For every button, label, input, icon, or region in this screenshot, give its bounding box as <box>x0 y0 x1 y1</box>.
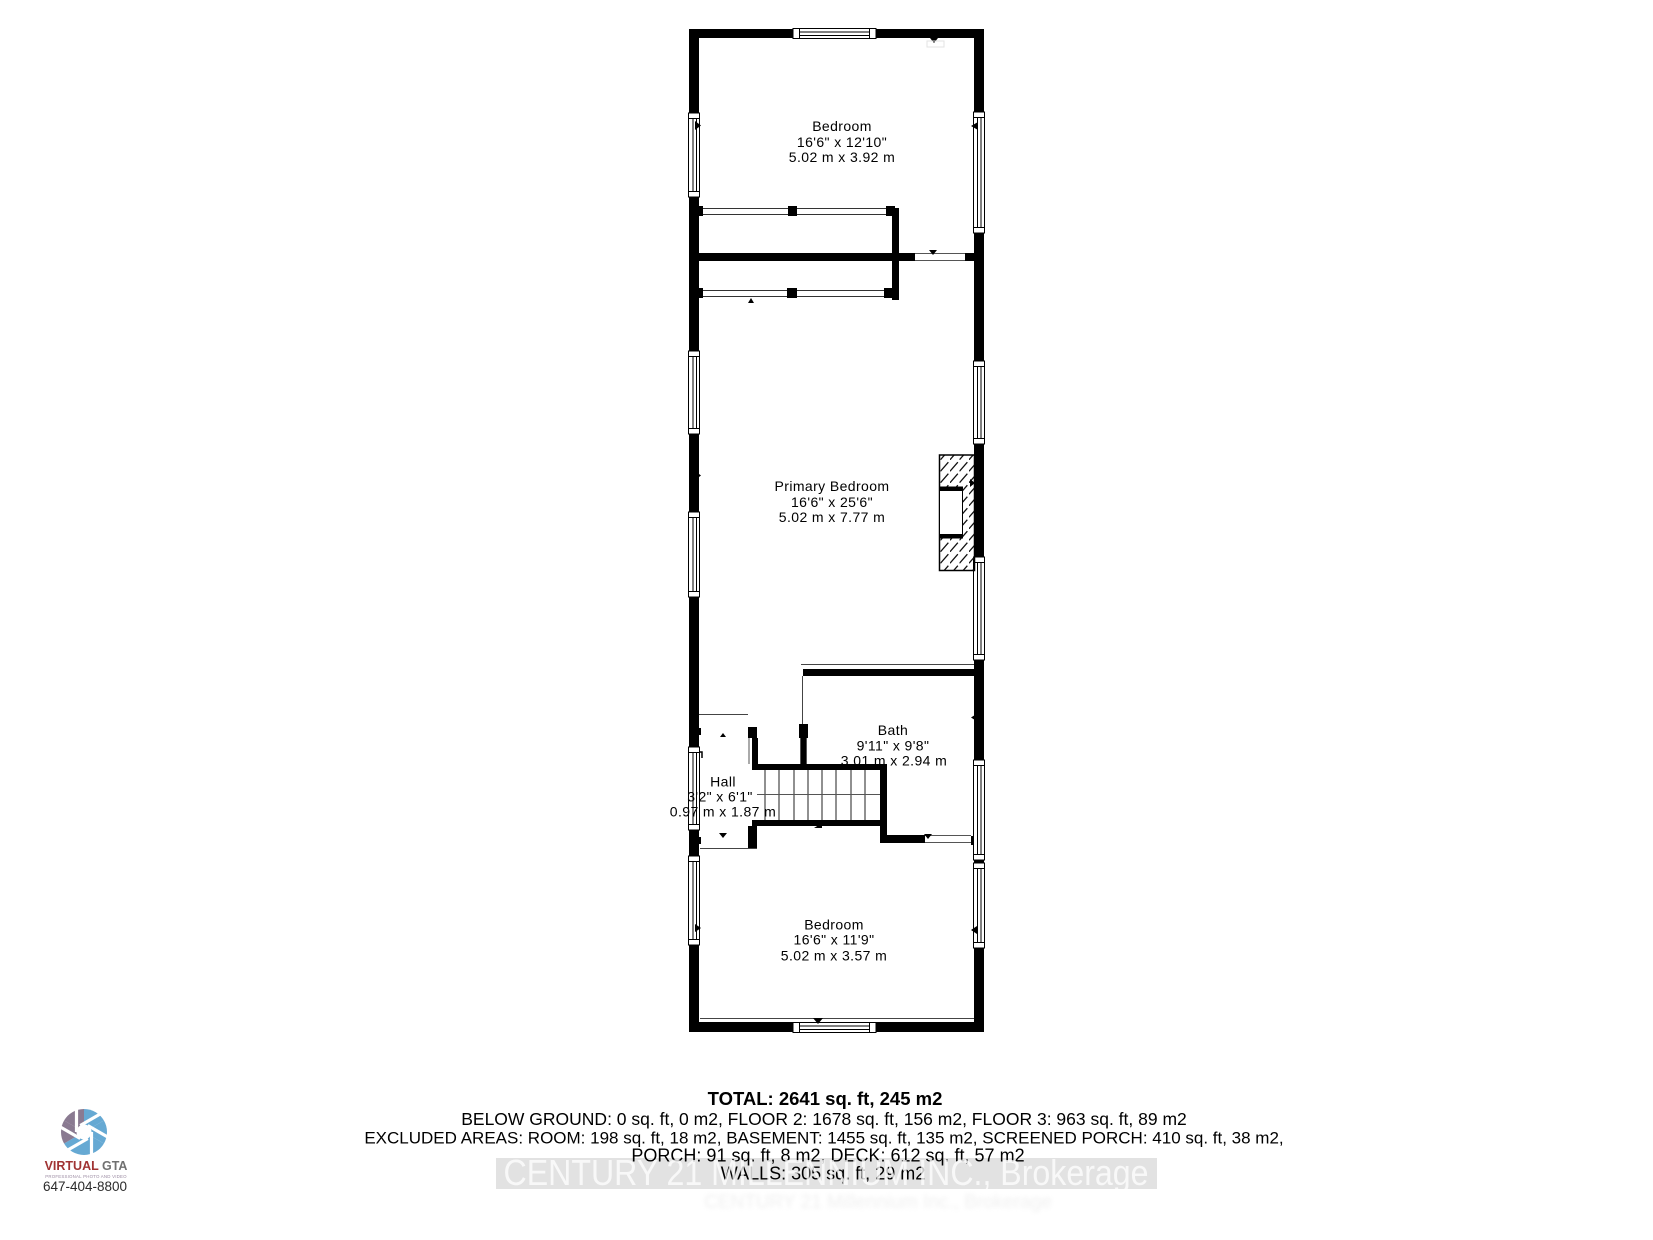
svg-text:9'11" x 9'8": 9'11" x 9'8" <box>857 738 930 754</box>
svg-text:TOTAL: 2641 sq. ft, 245 m2: TOTAL: 2641 sq. ft, 245 m2 <box>708 1088 943 1109</box>
svg-text:5.02 m x 7.77 m: 5.02 m x 7.77 m <box>779 509 885 525</box>
svg-text:Hall: Hall <box>710 774 736 790</box>
svg-text:BELOW GROUND: 0 sq. ft, 0 m2,: BELOW GROUND: 0 sq. ft, 0 m2, FLOOR 2: 1… <box>461 1109 1187 1129</box>
svg-text:0.97 m x 1.87 m: 0.97 m x 1.87 m <box>670 804 776 820</box>
svg-text:CENTURY 21 MILLENNIUM INC., Br: CENTURY 21 MILLENNIUM INC., Brokerage <box>504 1152 1149 1193</box>
svg-text:VIRTUAL GTA: VIRTUAL GTA <box>45 1159 128 1173</box>
svg-text:16'6" x 12'10": 16'6" x 12'10" <box>797 134 887 150</box>
svg-text:16'6" x 25'6": 16'6" x 25'6" <box>791 494 873 510</box>
svg-text:Primary Bedroom: Primary Bedroom <box>775 478 890 494</box>
svg-text:5.02 m x 3.92 m: 5.02 m x 3.92 m <box>789 149 895 165</box>
svg-text:Bath: Bath <box>878 722 908 738</box>
svg-text:CENTURY 21 Millennium Inc., Br: CENTURY 21 Millennium Inc., Brokerage <box>704 1192 1052 1213</box>
svg-text:647-404-8800: 647-404-8800 <box>43 1179 127 1194</box>
svg-text:Bedroom: Bedroom <box>804 917 864 933</box>
svg-text:Bedroom: Bedroom <box>812 118 872 134</box>
svg-text:5.02 m x 3.57 m: 5.02 m x 3.57 m <box>781 948 887 964</box>
svg-text:3.01 m x 2.94 m: 3.01 m x 2.94 m <box>841 753 947 769</box>
svg-text:16'6" x 11'9": 16'6" x 11'9" <box>794 932 875 948</box>
svg-text:3'2" x 6'1": 3'2" x 6'1" <box>687 789 753 805</box>
